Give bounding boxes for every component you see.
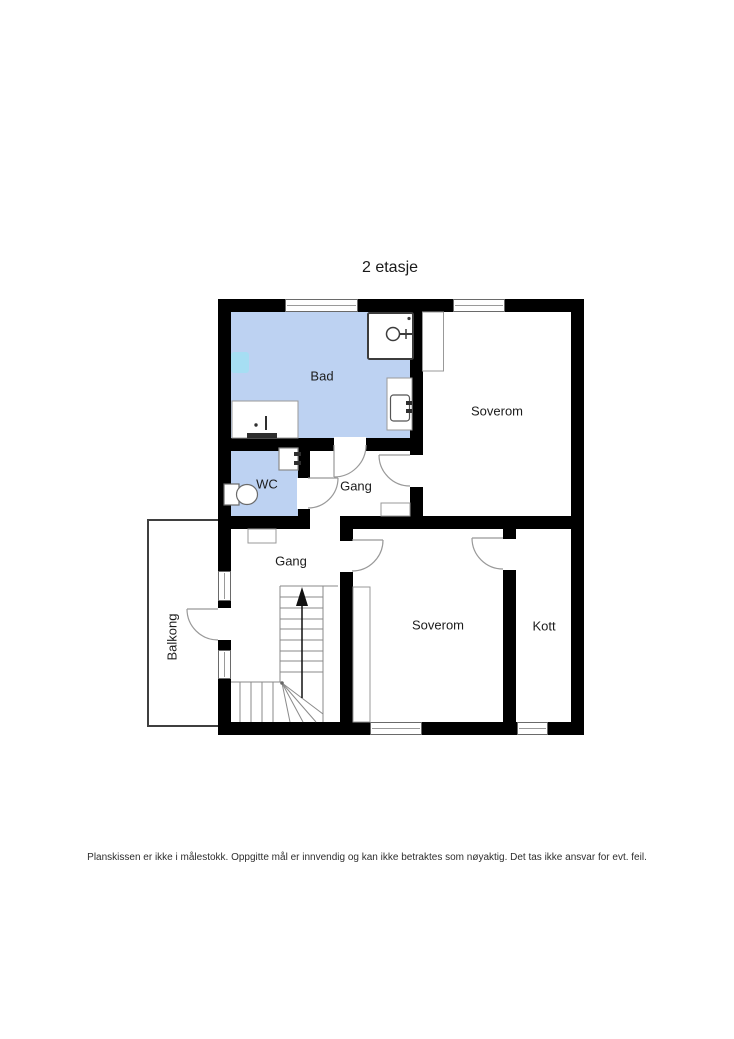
staircase bbox=[231, 586, 338, 722]
wc-door bbox=[308, 478, 338, 508]
door-opening-soverom-top bbox=[409, 455, 424, 487]
soverom-bottom-door bbox=[352, 540, 383, 571]
closet-soverom-top bbox=[423, 312, 444, 371]
room-label-gang-lower: Gang bbox=[275, 554, 307, 569]
niche-gang-upper bbox=[381, 503, 410, 516]
door-opening-kott bbox=[502, 539, 517, 570]
soverom-top-door bbox=[379, 455, 410, 486]
room-label-wc: WC bbox=[256, 477, 278, 492]
window bbox=[218, 650, 231, 679]
wall-segment bbox=[410, 312, 423, 529]
kott-door bbox=[472, 538, 503, 569]
stairs-up-arrow bbox=[296, 587, 308, 698]
room-label-gang-upper: Gang bbox=[340, 479, 372, 494]
window bbox=[218, 571, 231, 601]
balcony-outline bbox=[147, 519, 222, 727]
floor-plan-page: 2 etasje bbox=[0, 0, 734, 1039]
niche-gang-lower bbox=[248, 529, 276, 543]
wall-segment bbox=[340, 516, 584, 529]
door-opening-wc bbox=[297, 478, 311, 509]
door-opening-balcony bbox=[216, 608, 233, 640]
door-opening-bad bbox=[334, 437, 366, 452]
floor-title: 2 etasje bbox=[362, 259, 418, 277]
closet-soverom-bottom bbox=[353, 587, 370, 722]
window bbox=[517, 722, 548, 735]
window bbox=[285, 299, 358, 312]
room-label-soverom-bottom: Soverom bbox=[412, 618, 464, 633]
room-label-kott: Kott bbox=[532, 619, 555, 634]
door-opening-soverom-bottom bbox=[339, 541, 354, 572]
shower-zone bbox=[231, 352, 249, 373]
disclaimer-text: Planskissen er ikke i målestokk. Oppgitt… bbox=[0, 852, 734, 863]
room-label-bad: Bad bbox=[310, 369, 333, 384]
room-label-soverom-top: Soverom bbox=[471, 404, 523, 419]
window bbox=[453, 299, 505, 312]
wall-segment bbox=[231, 516, 310, 529]
room-label-balkong: Balkong bbox=[165, 614, 180, 661]
wall-segment bbox=[218, 299, 584, 312]
wall-segment bbox=[231, 438, 423, 451]
window bbox=[370, 722, 422, 735]
